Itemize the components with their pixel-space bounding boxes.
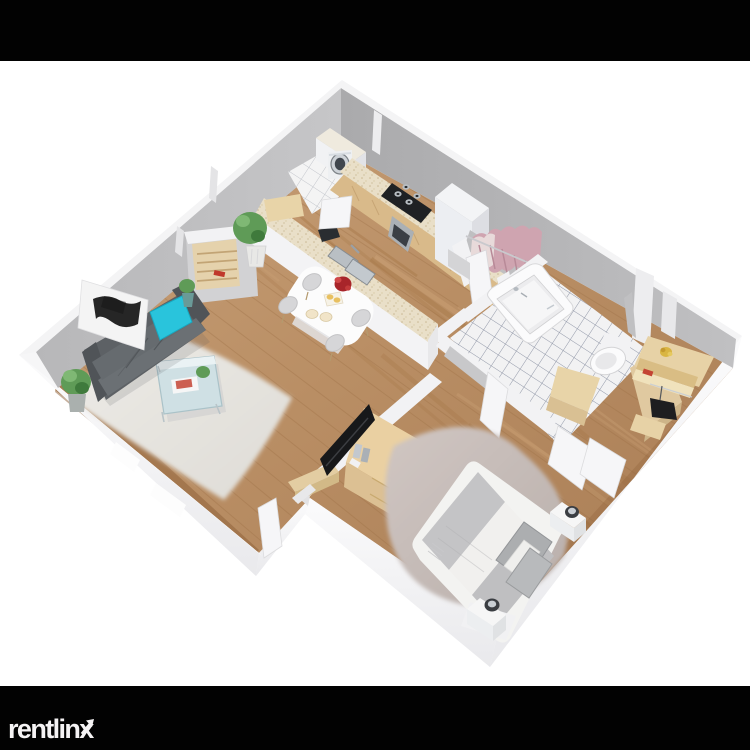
svg-text:rentlinx: rentlinx xyxy=(8,714,94,744)
